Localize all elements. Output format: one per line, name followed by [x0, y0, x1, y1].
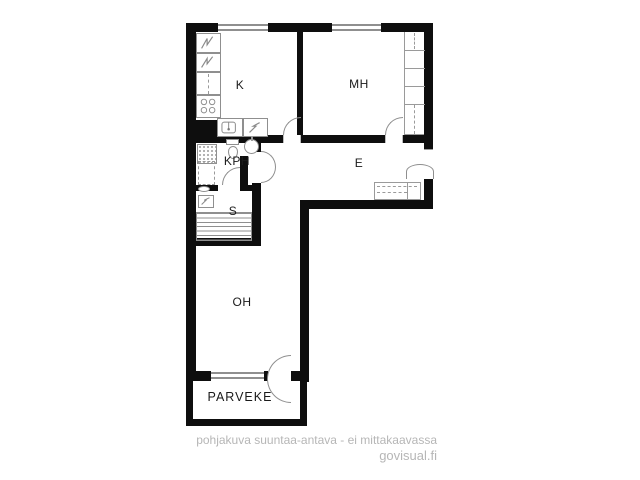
footer: pohjakuva suuntaa-antava - ei mittakaava… — [196, 433, 437, 463]
washbasin-icon — [244, 139, 259, 154]
washer-reservation-icon — [198, 161, 215, 185]
door-opening — [283, 135, 301, 143]
wall-segment — [300, 200, 309, 382]
balcony-wall-segment — [186, 372, 193, 426]
wall-segment — [424, 23, 433, 150]
room-label-bedroom: MH — [349, 77, 369, 91]
room-label-sauna: S — [229, 204, 238, 218]
room-label-bathroom: KPH — [224, 154, 250, 168]
faucet-icon — [251, 136, 253, 141]
wall-segment — [403, 135, 433, 143]
door-arc-icon — [222, 167, 240, 185]
window-icon — [218, 24, 268, 31]
wall-segment — [268, 23, 332, 32]
cabinet-icon — [196, 72, 221, 95]
wall-segment — [301, 135, 385, 143]
sauna-benches-icon — [196, 212, 252, 241]
room-label-living: OH — [233, 295, 252, 309]
disclaimer-text: pohjakuva suuntaa-antava - ei mittakaava… — [196, 433, 437, 447]
wall-segment — [252, 183, 261, 246]
door-arc-icon — [406, 164, 434, 179]
door-opening — [218, 185, 240, 191]
window-icon — [211, 372, 264, 379]
floor-plan: K MH KPH E S OH PARVEKE pohjakuva suunta… — [0, 0, 640, 480]
brand-text: govisual.fi — [196, 448, 437, 463]
toilet-tank-icon — [226, 139, 239, 145]
door-arc-icon — [283, 117, 301, 135]
door-jamb — [424, 149, 433, 150]
wardrobe-icon — [374, 182, 421, 200]
wall-segment — [186, 23, 196, 372]
dishwasher-icon — [243, 118, 268, 137]
door-opening — [385, 135, 403, 143]
sauna-heater-icon — [198, 195, 214, 208]
stove-icon — [196, 95, 221, 118]
room-label-kitchen: K — [236, 78, 245, 92]
room-label-balcony: PARVEKE — [208, 390, 273, 404]
room-label-entry: E — [355, 156, 364, 170]
wall-segment — [291, 371, 309, 381]
balcony-wall-segment — [300, 382, 307, 426]
door-arc-icon — [385, 117, 403, 135]
floor-drain-icon — [198, 186, 210, 192]
sink-icon — [217, 118, 243, 137]
wall-segment — [300, 200, 433, 209]
balcony-wall-segment — [186, 419, 307, 426]
wall-segment — [240, 185, 252, 191]
door-arc-icon — [261, 151, 276, 183]
window-icon — [332, 24, 381, 31]
closet-icon — [404, 32, 424, 135]
fridge-freezer-icon — [196, 33, 221, 53]
fridge-freezer-icon — [196, 53, 221, 72]
